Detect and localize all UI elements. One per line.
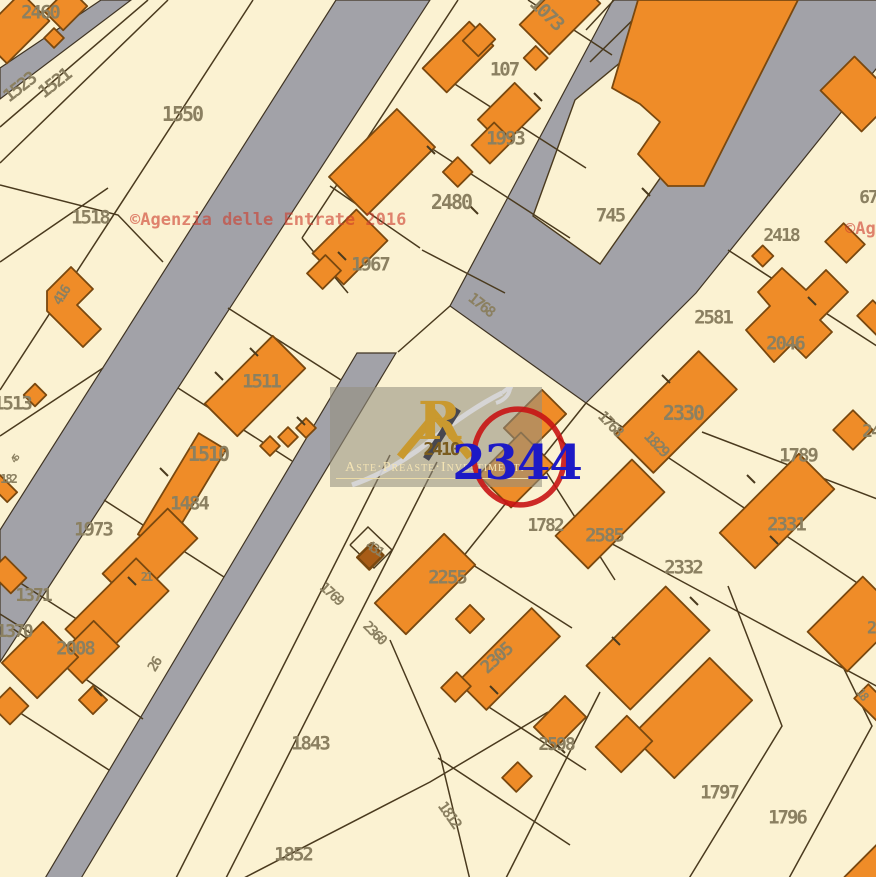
highlight-parcel-number: 2344 xyxy=(452,435,582,491)
highlight-layer xyxy=(0,0,880,880)
cadastral-map[interactable]: ©Agenzia delle Entrate 2016 ©Agenzia del… xyxy=(0,0,880,880)
right-edge-margin xyxy=(876,0,880,880)
